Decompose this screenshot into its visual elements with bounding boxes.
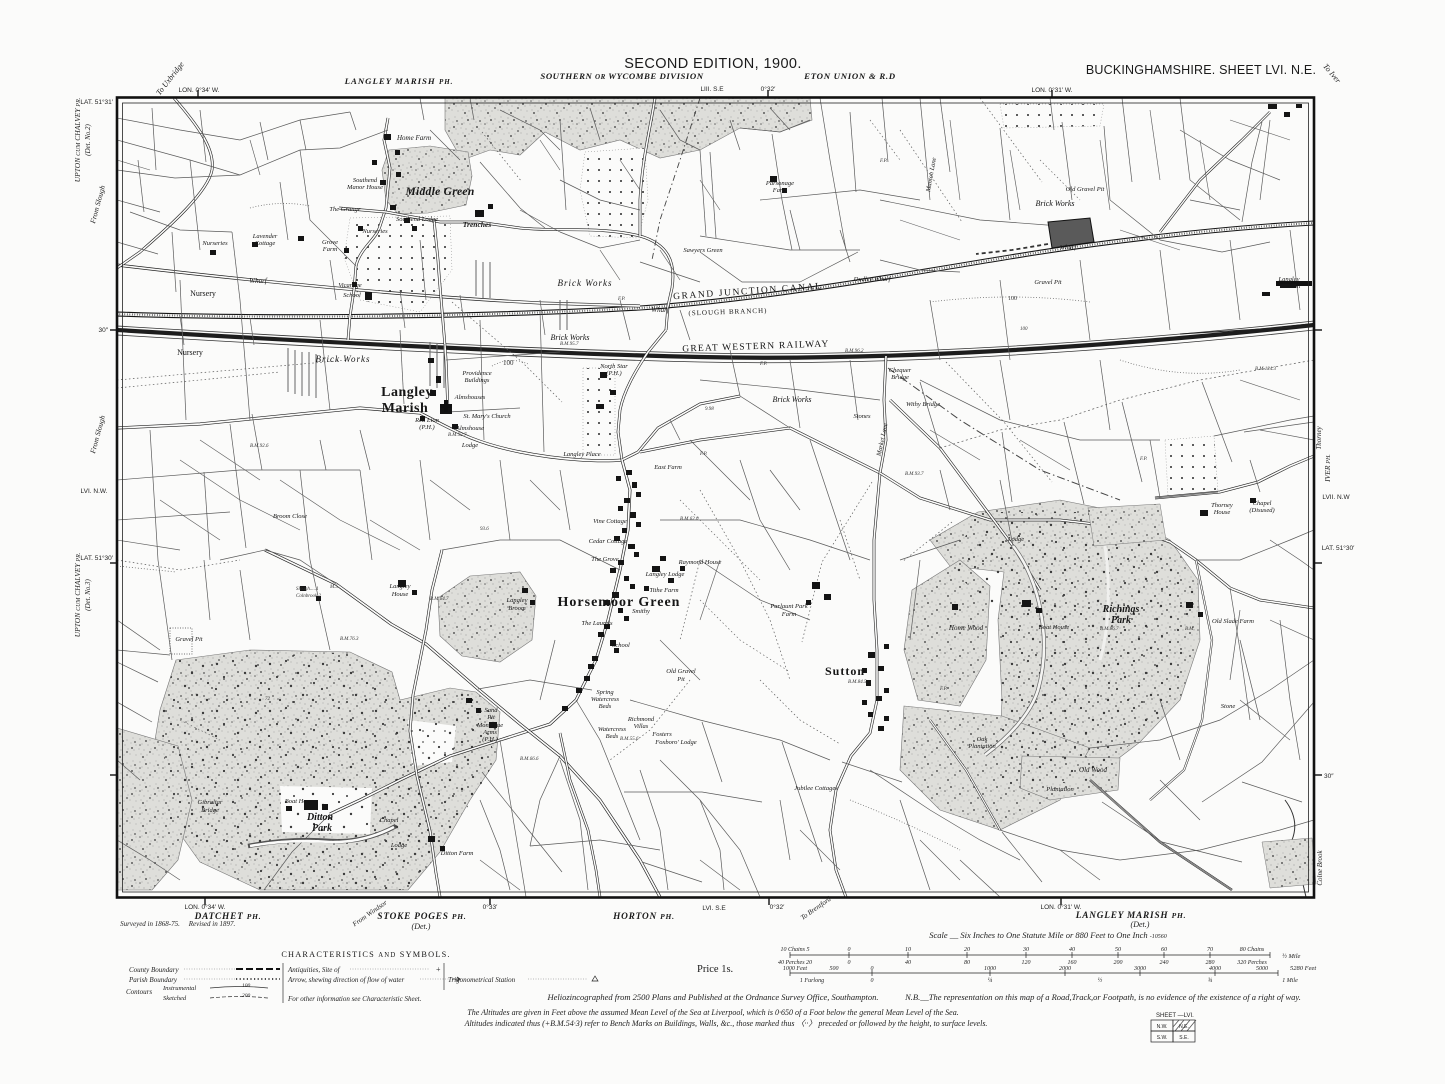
svg-text:1 Mile: 1 Mile: [1282, 978, 1298, 984]
svg-text:B.M.76.3: B.M.76.3: [340, 637, 359, 642]
svg-text:LVI. S.E: LVI. S.E: [702, 905, 726, 912]
svg-text:UPTON CUM CHALVEY PR.: UPTON CUM CHALVEY PR.: [73, 98, 82, 183]
svg-text:Broom Close: Broom Close: [273, 513, 307, 520]
svg-text:B.M.55.6: B.M.55.6: [620, 737, 639, 742]
svg-text:120: 120: [1022, 960, 1031, 966]
svg-text:N.W.: N.W.: [1157, 1024, 1168, 1030]
svg-text:Vicarage: Vicarage: [338, 282, 361, 289]
svg-text:Park: Park: [1111, 615, 1131, 626]
svg-text:Sand: Sand: [485, 707, 499, 714]
svg-text:Parsonage: Parsonage: [765, 180, 794, 187]
svg-text:Nursery: Nursery: [177, 348, 203, 357]
svg-text:40: 40: [1069, 946, 1075, 953]
svg-text:(P.H.): (P.H.): [482, 736, 497, 743]
svg-text:80 Chains: 80 Chains: [1240, 947, 1265, 953]
svg-text:Colnbrook 2: Colnbrook 2: [296, 594, 321, 599]
svg-text:Chapel: Chapel: [380, 817, 399, 824]
svg-text:Sutton: Sutton: [825, 664, 865, 678]
svg-text:Providence: Providence: [461, 370, 491, 377]
svg-text:Sketched: Sketched: [163, 995, 187, 1002]
svg-text:UPTON CUM CHALVEY PR.: UPTON CUM CHALVEY PR.: [73, 553, 82, 638]
svg-text:SOUTHERN OR WYCOMBE DIVISION: SOUTHERN OR WYCOMBE DIVISION: [540, 71, 703, 81]
svg-text:40: 40: [905, 959, 911, 966]
svg-text:LON. 0°34′ W.: LON. 0°34′ W.: [184, 903, 225, 911]
svg-text:Old Gravel Pit: Old Gravel Pit: [1066, 186, 1105, 193]
svg-text:B.M.86.7: B.M.86.7: [1100, 627, 1119, 632]
svg-text:Richings: Richings: [1102, 604, 1140, 615]
svg-text:Gravel Pit: Gravel Pit: [1034, 279, 1061, 286]
svg-text:72: 72: [265, 697, 271, 702]
svg-text:Colne Brook: Colne Brook: [1316, 849, 1324, 885]
svg-text:0: 0: [848, 960, 851, 966]
svg-text:F.P.: F.P.: [879, 159, 887, 164]
svg-text:Altitudes indicated thus (+B.M: Altitudes indicated thus (+B.M.54·3) ref…: [464, 1019, 988, 1028]
svg-text:Manor House: Manor House: [346, 184, 383, 191]
svg-text:B.M.62.0: B.M.62.0: [680, 517, 699, 522]
svg-text:Marish: Marish: [382, 401, 429, 416]
svg-text:House: House: [1213, 509, 1231, 516]
svg-text:B.M.84.5: B.M.84.5: [848, 680, 867, 685]
svg-text:M.S: M.S: [329, 585, 338, 590]
svg-text:Wharf: Wharf: [1060, 244, 1077, 251]
svg-text:200: 200: [1114, 960, 1123, 966]
svg-text:Raymond House: Raymond House: [678, 559, 722, 566]
svg-text:Nurseries: Nurseries: [361, 228, 388, 235]
svg-text:School: School: [612, 642, 630, 649]
svg-text:Trenches: Trenches: [463, 220, 492, 229]
svg-text:F.P.: F.P.: [617, 297, 625, 302]
svg-text:Lodge: Lodge: [1007, 536, 1024, 543]
svg-text:Old Wood: Old Wood: [1079, 766, 1107, 774]
svg-text:(Det.): (Det.): [412, 922, 431, 931]
svg-text:Lodge: Lodge: [390, 842, 407, 849]
svg-text:Chapel: Chapel: [1253, 500, 1272, 507]
svg-text:Grove: Grove: [322, 239, 338, 246]
svg-text:Nurseries: Nurseries: [201, 240, 228, 247]
svg-text:Gravel Pit: Gravel Pit: [175, 636, 202, 643]
svg-text:Cottage: Cottage: [255, 240, 276, 247]
svg-text:Thorney: Thorney: [1211, 502, 1233, 509]
svg-text:Beds: Beds: [606, 733, 619, 740]
svg-text:(Disused): (Disused): [1249, 507, 1274, 514]
svg-text:BUCKINGHAMSHIRE. SHEET LVI. N: BUCKINGHAMSHIRE. SHEET LVI. N.E.: [1086, 63, 1316, 77]
svg-text:House: House: [391, 591, 409, 598]
svg-text:Langley: Langley: [389, 583, 411, 590]
svg-text:30″: 30″: [1324, 773, 1334, 780]
svg-text:Middle Green: Middle Green: [404, 186, 474, 198]
svg-text:Wharf: Wharf: [651, 306, 670, 314]
svg-text:Park: Park: [312, 823, 332, 834]
svg-text:Dudley Wharf: Dudley Wharf: [853, 276, 892, 283]
svg-text:Langley: Langley: [381, 385, 433, 400]
svg-text:10 Chains 5: 10 Chains 5: [780, 947, 809, 953]
svg-text:Scale __ Six Inches to One Sta: Scale __ Six Inches to One Statute Mile …: [929, 930, 1166, 940]
svg-text:Langley: Langley: [1278, 276, 1300, 283]
svg-text:CHARACTERISTICS AND SYMBOLS.: CHARACTERISTICS AND SYMBOLS.: [281, 950, 450, 959]
svg-text:LIII. S.E: LIII. S.E: [700, 86, 724, 93]
svg-text:Farm: Farm: [772, 187, 788, 194]
svg-text:LVI. N.W.: LVI. N.W.: [81, 488, 108, 495]
svg-text:Stones: Stones: [854, 413, 871, 420]
svg-text:Withy Bridge: Withy Bridge: [906, 401, 940, 408]
svg-text:St. Mary's Church: St. Mary's Church: [463, 413, 510, 420]
svg-text:N.B.__The representation on th: N.B.__The representation on this map of …: [904, 992, 1301, 1002]
svg-text:LVII. N.W: LVII. N.W: [1322, 494, 1350, 501]
svg-text:B.M.93.7: B.M.93.7: [905, 472, 924, 477]
svg-text:80: 80: [964, 960, 970, 966]
svg-text:Watercress: Watercress: [591, 696, 620, 703]
svg-text:93.6: 93.6: [480, 527, 489, 532]
svg-text:Oak: Oak: [977, 736, 988, 743]
svg-text:Thorney: Thorney: [1315, 425, 1323, 449]
svg-text:HORTON PH.: HORTON PH.: [612, 912, 675, 922]
svg-text:LON. 0°34′ W.: LON. 0°34′ W.: [178, 86, 219, 94]
svg-text:500: 500: [830, 966, 839, 972]
svg-text:Parish Boundary: Parish Boundary: [128, 976, 178, 984]
svg-text:(Det.): (Det.): [1131, 920, 1150, 929]
svg-text:S.E.: S.E.: [1179, 1035, 1188, 1041]
svg-text:STOKE POGES PH.: STOKE POGES PH.: [377, 912, 466, 922]
svg-text:Richmond: Richmond: [627, 716, 655, 723]
svg-text:B.M.: B.M.: [1185, 627, 1195, 632]
svg-text:For other information see Char: For other information see Characteristic…: [287, 995, 422, 1003]
svg-text:Villas: Villas: [634, 723, 649, 730]
svg-text:Stone: Stone: [1221, 703, 1236, 710]
svg-text:Red Lion: Red Lion: [414, 417, 439, 424]
svg-text:Arrow, shewing direction of fl: Arrow, shewing direction of flow of wate…: [287, 976, 404, 984]
svg-text:½: ½: [1098, 977, 1103, 984]
svg-text:(Det. No.3): (Det. No.3): [84, 578, 92, 610]
svg-text:Old Gravel: Old Gravel: [666, 668, 696, 675]
svg-text:Smithy: Smithy: [632, 608, 650, 615]
svg-text:Spring: Spring: [596, 689, 614, 696]
svg-text:LAT. 51°31′: LAT. 51°31′: [80, 98, 113, 106]
svg-text:Brick Works: Brick Works: [772, 395, 811, 404]
svg-text:LAT. 51°30′: LAT. 51°30′: [80, 554, 113, 562]
svg-text:ETON UNION & R.D: ETON UNION & R.D: [803, 71, 896, 81]
svg-text:F.P.: F.P.: [699, 452, 707, 457]
svg-text:Watercress: Watercress: [598, 726, 627, 733]
svg-text:Plantation: Plantation: [1045, 786, 1073, 793]
svg-text:9.98: 9.98: [705, 407, 714, 412]
svg-text:¼: ¼: [988, 978, 993, 984]
svg-text:Instrumental: Instrumental: [162, 985, 196, 992]
svg-text:Brick Works: Brick Works: [1035, 199, 1074, 208]
svg-text:F.P.: F.P.: [939, 687, 947, 692]
svg-text:Lavender: Lavender: [252, 233, 278, 240]
svg-text:(Det. No.2): (Det. No.2): [84, 123, 92, 155]
svg-text:Buildings: Buildings: [465, 377, 490, 384]
svg-text:County Boundary: County Boundary: [129, 966, 179, 974]
svg-text:1000 Feet: 1000 Feet: [783, 966, 807, 972]
svg-text:Jubilee Cottages: Jubilee Cottages: [794, 785, 838, 792]
svg-text:F.P.: F.P.: [759, 362, 767, 367]
svg-text:Sawyers Green: Sawyers Green: [683, 247, 722, 254]
svg-text:¾: ¾: [1208, 978, 1213, 984]
svg-text:Cedar Cottage: Cedar Cottage: [589, 538, 628, 545]
svg-text:S.W.: S.W.: [1157, 1035, 1168, 1041]
svg-text:Farm: Farm: [322, 246, 338, 253]
svg-text:40 Perches 20: 40 Perches 20: [778, 959, 812, 966]
svg-text:Southend: Southend: [353, 177, 378, 184]
svg-text:200: 200: [242, 993, 251, 999]
svg-text:Contours: Contours: [126, 988, 152, 996]
svg-text:LON. 0°31′ W.: LON. 0°31′ W.: [1040, 903, 1081, 911]
svg-text:100: 100: [242, 983, 251, 989]
svg-text:Wharf: Wharf: [249, 277, 268, 285]
svg-text:Trigonometrical Station: Trigonometrical Station: [448, 976, 516, 984]
svg-text:Bridge: Bridge: [201, 807, 219, 814]
svg-text:Fosters: Fosters: [651, 731, 672, 738]
svg-text:100: 100: [1008, 296, 1017, 302]
svg-text:240: 240: [1160, 959, 1169, 966]
svg-text:B.M.92.7: B.M.92.7: [448, 433, 467, 438]
svg-text:East Farm: East Farm: [653, 464, 682, 471]
svg-text:LON. 0°31′ W.: LON. 0°31′ W.: [1031, 86, 1072, 94]
svg-text:Arms: Arms: [482, 729, 497, 736]
svg-text:SECOND EDITION, 1900.: SECOND EDITION, 1900.: [624, 56, 802, 72]
svg-text:Boat House: Boat House: [285, 798, 316, 805]
svg-text:(P.H.): (P.H.): [606, 370, 621, 377]
svg-text:Pit: Pit: [676, 676, 685, 683]
svg-text:3000: 3000: [1133, 966, 1146, 972]
svg-text:5280 Feet: 5280 Feet: [1290, 965, 1316, 972]
svg-text:100: 100: [1020, 327, 1028, 332]
svg-text:Old Slade Farm: Old Slade Farm: [1212, 618, 1254, 625]
svg-text:30″: 30″: [98, 327, 108, 334]
svg-text:½ Mile: ½ Mile: [1282, 953, 1301, 960]
svg-text:School: School: [343, 292, 361, 299]
svg-text:The Altitudes are given in Fee: The Altitudes are given in Feet above th…: [467, 1008, 958, 1017]
svg-text:Boat House: Boat House: [1039, 624, 1070, 631]
svg-text:Southend Lodge: Southend Lodge: [396, 216, 438, 223]
svg-text:B.M.96.2: B.M.96.2: [845, 349, 864, 354]
svg-text:Ditton Farm: Ditton Farm: [440, 850, 474, 857]
svg-text:Lodge: Lodge: [461, 442, 478, 449]
svg-text:Bridge: Bridge: [891, 374, 909, 381]
svg-text:+: +: [436, 965, 441, 974]
svg-text:B.M.66.6: B.M.66.6: [520, 757, 539, 762]
svg-text:Pit: Pit: [486, 714, 495, 721]
svg-text:Tithe Farm: Tithe Farm: [649, 587, 678, 594]
svg-text:Ditton: Ditton: [306, 812, 334, 823]
svg-text:The Grove: The Grove: [591, 556, 618, 563]
svg-text:Home Wood: Home Wood: [948, 624, 984, 632]
svg-text:Heliozincographed from 2500 Pl: Heliozincographed from 2500 Plans and Pu…: [546, 992, 878, 1002]
svg-text:Brick Works: Brick Works: [316, 354, 371, 364]
svg-text:30: 30: [1022, 947, 1029, 953]
svg-text:Gibraltar: Gibraltar: [198, 799, 223, 806]
svg-text:(P.H.): (P.H.): [419, 424, 434, 431]
svg-text:Langley Place: Langley Place: [562, 451, 600, 458]
svg-text:5000: 5000: [1256, 966, 1268, 972]
svg-text:Station: Station: [1282, 283, 1300, 290]
svg-text:Foxboro' Lodge: Foxboro' Lodge: [654, 739, 697, 746]
svg-text:The Grange: The Grange: [329, 206, 360, 213]
svg-text:Farm: Farm: [781, 611, 797, 618]
svg-text:Langley: Langley: [506, 597, 528, 604]
svg-text:Horsemoor Green: Horsemoor Green: [558, 595, 681, 610]
svg-text:Nursery: Nursery: [190, 289, 216, 298]
svg-text:North Star: North Star: [599, 363, 628, 370]
svg-text:Brick Works: Brick Works: [558, 278, 613, 288]
svg-text:B.M.64.7: B.M.64.7: [430, 597, 449, 602]
svg-text:Home Farm: Home Farm: [396, 134, 431, 142]
svg-text:Vine Cottage: Vine Cottage: [593, 518, 627, 525]
svg-text:N.E.: N.E.: [1179, 1024, 1189, 1030]
svg-text:B.M.95.7: B.M.95.7: [560, 342, 579, 347]
svg-text:Parlaunt Park: Parlaunt Park: [769, 603, 807, 610]
svg-text:LAT. 51°30′: LAT. 51°30′: [1322, 544, 1355, 552]
svg-text:0°33′: 0°33′: [483, 903, 498, 911]
svg-text:F.P.: F.P.: [1139, 457, 1147, 462]
svg-text:Beds: Beds: [599, 703, 612, 710]
svg-text:The Laurels: The Laurels: [582, 620, 613, 627]
svg-text:SHEET —LVI.: SHEET —LVI.: [1156, 1013, 1194, 1019]
svg-text:Revised in 1897.: Revised in 1897.: [188, 920, 236, 928]
svg-text:Brick Works: Brick Works: [550, 333, 589, 342]
svg-text:B.M.92.6: B.M.92.6: [250, 444, 269, 449]
svg-text:Broom: Broom: [508, 605, 526, 612]
svg-text:Chequer: Chequer: [889, 367, 912, 374]
svg-text:Plantation: Plantation: [967, 743, 995, 750]
svg-text:1 Furlong: 1 Furlong: [800, 978, 824, 984]
svg-text:LANGLEY MARISH PH.: LANGLEY MARISH PH.: [344, 76, 454, 86]
svg-text:Langley Lodge: Langley Lodge: [645, 571, 685, 578]
svg-text:0°32′: 0°32′: [761, 85, 776, 93]
svg-text:B.M.124.3: B.M.124.3: [1255, 367, 1276, 372]
svg-text:Surveyed in 1868-75.: Surveyed in 1868-75.: [120, 920, 180, 928]
svg-text:Slough.....1: Slough.....1: [296, 587, 319, 592]
svg-text:100: 100: [503, 359, 514, 367]
svg-text:Almshouses: Almshouses: [454, 394, 486, 401]
svg-text:Antiquities, Site of: Antiquities, Site of: [287, 966, 341, 974]
svg-text:Almshouse: Almshouse: [455, 425, 484, 432]
svg-text:Montague: Montague: [476, 722, 503, 729]
svg-text:Price 1s.: Price 1s.: [697, 964, 733, 975]
svg-text:0°32′: 0°32′: [770, 903, 785, 911]
svg-text:0: 0: [871, 978, 874, 984]
